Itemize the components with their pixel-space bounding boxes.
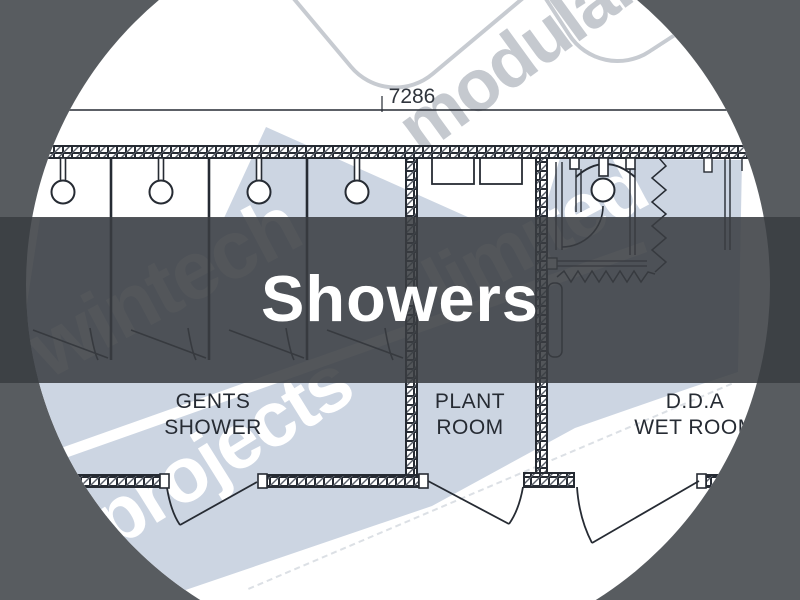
bottom-wall [267,475,419,487]
doors [167,481,699,543]
room-label-gents-shower: GENTS SHOWER [118,389,308,441]
dda-wall-base [524,473,574,487]
room-label-dda-wet-room: D.D.A WET ROOM [600,389,790,441]
room-label-plant-room: PLANT ROOM [375,389,565,441]
plant-tank [432,158,474,184]
room-label-line: D.D.A [600,389,790,415]
title-band: Showers [0,217,800,383]
room-label-line: WET ROOM [600,415,790,441]
bottom-wall [70,475,160,487]
wall-stubs [160,474,706,488]
bottom-wall [706,475,762,487]
plant-tank [480,158,522,184]
dimension-label: 7286 [362,85,462,109]
page-title: Showers [261,261,539,340]
top-wall [40,146,760,158]
room-label-line: PLANT [375,389,565,415]
project-card[interactable]: modular wintech projects limited [0,0,800,600]
room-label-line: SHOWER [118,415,308,441]
room-label-line: ROOM [375,415,565,441]
room-label-line: GENTS [118,389,308,415]
